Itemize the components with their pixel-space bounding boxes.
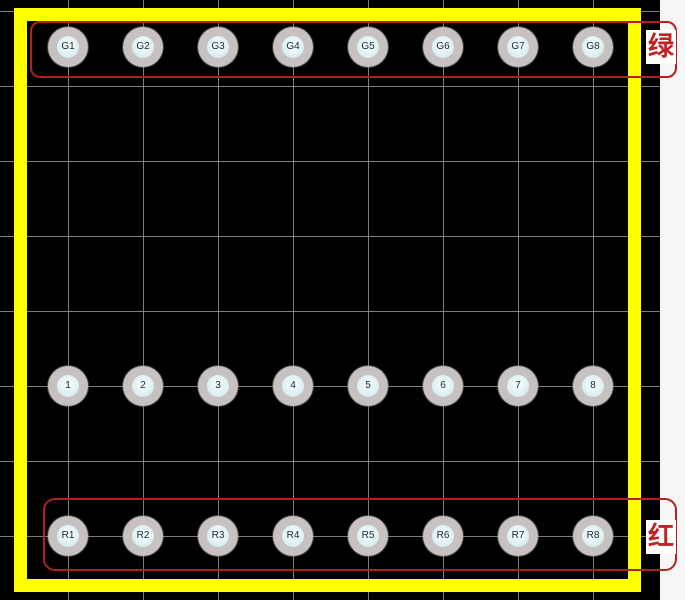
- pad-label: 5: [348, 366, 388, 406]
- pad-R3[interactable]: R3: [198, 516, 238, 556]
- pad-label: G4: [273, 27, 313, 67]
- pad-2[interactable]: 2: [123, 366, 163, 406]
- red-row-annotation-label: 红: [646, 520, 676, 554]
- pad-4[interactable]: 4: [273, 366, 313, 406]
- pad-label: G2: [123, 27, 163, 67]
- pad-label: R5: [348, 516, 388, 556]
- pad-8[interactable]: 8: [573, 366, 613, 406]
- pad-G1[interactable]: G1: [48, 27, 88, 67]
- pad-label: 1: [48, 366, 88, 406]
- pad-label: G1: [48, 27, 88, 67]
- pad-6[interactable]: 6: [423, 366, 463, 406]
- pad-R4[interactable]: R4: [273, 516, 313, 556]
- pad-label: G5: [348, 27, 388, 67]
- pad-label: 8: [573, 366, 613, 406]
- pad-label: 6: [423, 366, 463, 406]
- pad-label: R7: [498, 516, 538, 556]
- pad-label: R3: [198, 516, 238, 556]
- pad-label: 2: [123, 366, 163, 406]
- pad-label: R8: [573, 516, 613, 556]
- pad-label: G8: [573, 27, 613, 67]
- pad-G7[interactable]: G7: [498, 27, 538, 67]
- pad-label: G3: [198, 27, 238, 67]
- pad-label: 4: [273, 366, 313, 406]
- pad-label: R4: [273, 516, 313, 556]
- pad-R5[interactable]: R5: [348, 516, 388, 556]
- pad-G6[interactable]: G6: [423, 27, 463, 67]
- pad-7[interactable]: 7: [498, 366, 538, 406]
- pad-R6[interactable]: R6: [423, 516, 463, 556]
- pad-G3[interactable]: G3: [198, 27, 238, 67]
- pad-label: G6: [423, 27, 463, 67]
- green-row-annotation-label: 绿: [646, 30, 676, 64]
- pad-label: 3: [198, 366, 238, 406]
- pad-label: R1: [48, 516, 88, 556]
- pad-R8[interactable]: R8: [573, 516, 613, 556]
- pcb-editor-screenshot: 绿 红 G1G2G3G4G5G6G7G812345678R1R2R3R4R5R6…: [0, 0, 685, 600]
- pad-G4[interactable]: G4: [273, 27, 313, 67]
- pad-R2[interactable]: R2: [123, 516, 163, 556]
- pad-G5[interactable]: G5: [348, 27, 388, 67]
- pad-label: G7: [498, 27, 538, 67]
- pad-R7[interactable]: R7: [498, 516, 538, 556]
- pad-label: R6: [423, 516, 463, 556]
- pad-G8[interactable]: G8: [573, 27, 613, 67]
- pad-5[interactable]: 5: [348, 366, 388, 406]
- pad-1[interactable]: 1: [48, 366, 88, 406]
- pad-label: 7: [498, 366, 538, 406]
- pad-R1[interactable]: R1: [48, 516, 88, 556]
- pad-label: R2: [123, 516, 163, 556]
- pad-3[interactable]: 3: [198, 366, 238, 406]
- pad-G2[interactable]: G2: [123, 27, 163, 67]
